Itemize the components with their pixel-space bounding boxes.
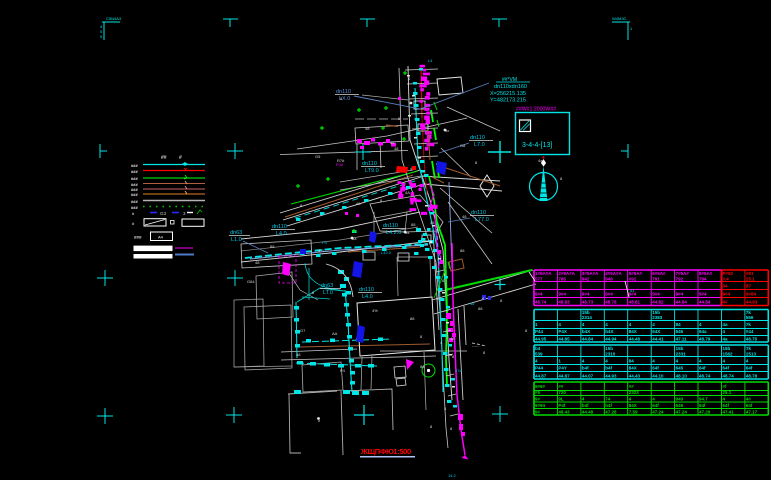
svg-text:48.93: 48.93: [558, 300, 570, 305]
svg-text:AA: AA: [332, 331, 338, 336]
svg-text:G5: G5: [315, 154, 321, 159]
svg-text:84X: 84X: [629, 366, 637, 371]
svg-text:88: 88: [460, 248, 465, 253]
svg-text:2310: 2310: [605, 352, 616, 357]
svg-text:44.84: 44.84: [676, 300, 688, 305]
svg-text:48.10: 48.10: [676, 374, 688, 379]
svg-text:48.78: 48.78: [746, 374, 758, 379]
svg-text:34: 34: [723, 284, 729, 289]
svg-text:dn110: dn110: [362, 161, 377, 167]
svg-text:#91: #91: [746, 271, 754, 276]
svg-text:44.94: 44.94: [605, 337, 617, 342]
svg-text:44.95: 44.95: [535, 337, 547, 342]
svg-text:48: 48: [255, 260, 260, 265]
svg-text:###: ###: [131, 199, 138, 204]
svg-text:48.74: 48.74: [699, 374, 711, 379]
svg-text:47.11: 47.11: [676, 337, 688, 342]
svg-text:48: 48: [450, 336, 455, 341]
svg-text:791: 791: [652, 277, 660, 282]
svg-text:44.48: 44.48: [582, 410, 594, 415]
svg-text:4#: 4#: [470, 301, 475, 306]
svg-text:48.79: 48.79: [699, 337, 711, 342]
svg-text:720: 720: [558, 390, 566, 395]
svg-text:LT9.0: LT9.0: [365, 168, 379, 174]
svg-text:74: 74: [605, 397, 611, 402]
svg-text:9#4: 9#4: [558, 292, 566, 297]
svg-text:88: 88: [390, 140, 395, 145]
svg-text:940: 940: [676, 397, 684, 402]
svg-text:64f: 64f: [699, 403, 706, 408]
svg-text:44.87: 44.87: [535, 374, 547, 379]
svg-text:25.1: 25.1: [746, 277, 755, 282]
svg-text:1562: 1562: [723, 352, 734, 357]
svg-text:48: 48: [462, 214, 467, 219]
svg-text:645: 645: [676, 366, 684, 371]
svg-text:4.9: 4.9: [318, 248, 324, 253]
svg-text:2513: 2513: [746, 352, 757, 357]
svg-text:44.85: 44.85: [558, 337, 570, 342]
svg-text:9#4: 9#4: [535, 292, 543, 297]
svg-text:dn63: dn63: [230, 230, 242, 236]
svg-text:44.43: 44.43: [629, 374, 641, 379]
svg-text:44.07: 44.07: [582, 374, 594, 379]
svg-text:48.81: 48.81: [629, 300, 641, 305]
svg-text:9#4: 9#4: [582, 292, 590, 297]
svg-text:48: 48: [356, 201, 361, 206]
svg-text:G84: G84: [247, 279, 255, 284]
svg-text:9#: 9#: [535, 397, 541, 402]
svg-text:C5N4A3: C5N4A3: [106, 16, 122, 21]
svg-text:###: ###: [131, 192, 138, 197]
svg-text:G3: G3: [160, 211, 167, 216]
svg-text:##W#1:2000W##: ##W#1:2000W##: [516, 107, 556, 113]
svg-text:6#5A#: 6#5A#: [652, 271, 666, 276]
svg-text:G7: G7: [300, 328, 306, 333]
svg-text:P4f: P4f: [558, 403, 566, 408]
svg-text:44.84: 44.84: [699, 300, 711, 305]
svg-text:942: 942: [582, 277, 590, 282]
svg-text:4#: 4#: [746, 397, 752, 402]
svg-text:9#9#: 9#9#: [535, 384, 546, 389]
svg-text:64a: 64a: [699, 329, 707, 334]
svg-text:44.84: 44.84: [582, 337, 594, 342]
svg-text:ЖЩПФЮ1:500: ЖЩПФЮ1:500: [360, 447, 411, 456]
svg-text:##: ##: [161, 155, 167, 161]
svg-text:3-4-4-[13]: 3-4-4-[13]: [522, 142, 552, 149]
svg-text:R7#: R7#: [337, 158, 345, 163]
svg-text:25.1: 25.1: [723, 390, 732, 395]
svg-text:94.7: 94.7: [699, 397, 708, 402]
svg-text:64f: 64f: [652, 366, 659, 371]
svg-text:7k: 7k: [746, 322, 752, 327]
svg-text:47.41: 47.41: [723, 410, 735, 415]
svg-text:#5: #5: [535, 390, 541, 395]
svg-text:#f: #f: [723, 384, 728, 389]
svg-text:64f: 64f: [699, 366, 706, 371]
svg-text:44.82: 44.82: [652, 300, 664, 305]
svg-text:792: 792: [676, 277, 684, 282]
svg-text:###: ###: [131, 169, 138, 174]
svg-text:4a: 4a: [723, 322, 729, 327]
svg-text:64f: 64f: [723, 366, 730, 371]
svg-text:dn63: dn63: [321, 283, 333, 289]
svg-text:44.41: 44.41: [652, 337, 664, 342]
svg-text:W4M3C: W4M3C: [612, 16, 627, 21]
svg-text:7.59: 7.59: [629, 410, 638, 415]
svg-text:48.73: 48.73: [582, 300, 594, 305]
svg-text:4A: 4A: [405, 190, 410, 195]
svg-text:L77.0: L77.0: [475, 217, 489, 223]
svg-text:dn110: dn110: [470, 135, 485, 141]
svg-text:X=256215.135: X=256215.135: [490, 91, 526, 97]
svg-text:2#9A#A: 2#9A#A: [558, 271, 575, 276]
svg-text:84: 84: [629, 359, 635, 364]
svg-text:48: 48: [365, 126, 370, 131]
svg-text:9#4: 9#4: [699, 292, 707, 297]
svg-text:dn110: dn110: [471, 210, 486, 216]
svg-text:9#: 9#: [535, 410, 541, 415]
svg-text:2314: 2314: [582, 315, 593, 320]
svg-text:556: 556: [746, 315, 754, 320]
svg-text:47.24: 47.24: [652, 410, 664, 415]
svg-text:7#5A#: 7#5A#: [676, 271, 690, 276]
svg-text:#.4: #.4: [723, 277, 730, 282]
svg-text:###: ###: [131, 163, 138, 168]
svg-text:P44: P44: [535, 329, 544, 334]
svg-text:u: u: [414, 116, 416, 121]
svg-text:47.29: 47.29: [699, 410, 711, 415]
svg-text:48.74: 48.74: [723, 374, 735, 379]
svg-text:L7.0: L7.0: [474, 142, 485, 148]
svg-text:14.2: 14.2: [448, 473, 457, 478]
svg-text:P4Y: P4Y: [558, 366, 567, 371]
svg-text:64X: 64X: [652, 329, 660, 334]
svg-text:G8: G8: [460, 143, 466, 148]
svg-text:84: 84: [676, 322, 682, 327]
svg-text:9#84: 9#84: [746, 292, 757, 297]
svg-text:dn110xdn160: dn110xdn160: [494, 84, 527, 90]
svg-text:b4f: b4f: [605, 403, 612, 408]
svg-text:9#4: 9#4: [605, 292, 613, 297]
svg-text:44.83: 44.83: [746, 300, 758, 305]
svg-text:L4.0: L4.0: [276, 231, 287, 237]
svg-text:b4f: b4f: [582, 403, 589, 408]
svg-text:64f: 64f: [652, 403, 659, 408]
svg-text:P44: P44: [535, 366, 544, 371]
svg-text:9#4: 9#4: [723, 292, 731, 297]
svg-text:44: 44: [436, 296, 441, 301]
svg-text:#91: #91: [629, 277, 637, 282]
svg-text:44.87: 44.87: [558, 374, 570, 379]
svg-text:794: 794: [699, 277, 707, 282]
svg-text:##: ##: [629, 384, 635, 389]
svg-text:b4X: b4X: [605, 329, 613, 334]
svg-text:15b: 15b: [723, 346, 731, 351]
svg-text:48: 48: [296, 352, 301, 357]
svg-text:9#94: 9#94: [535, 403, 546, 408]
svg-text:L4: L4: [428, 58, 433, 63]
svg-text:47a: 47a: [455, 368, 462, 373]
svg-text:dn110: dn110: [359, 287, 374, 293]
svg-text:9#4: 9#4: [652, 292, 660, 297]
svg-text:64f: 64f: [723, 403, 730, 408]
svg-text:41: 41: [630, 288, 635, 293]
svg-text:P#92: P#92: [723, 271, 734, 276]
svg-text:88: 88: [270, 244, 275, 249]
svg-text:###: ###: [131, 176, 138, 181]
svg-text:48.43: 48.43: [558, 410, 570, 415]
svg-text:b4: b4: [535, 346, 541, 351]
svg-text:539: 539: [535, 352, 543, 357]
svg-text:b4f: b4f: [582, 366, 589, 371]
svg-text:645: 645: [676, 403, 684, 408]
svg-text:L42.0: L42.0: [381, 250, 392, 255]
svg-text:4a: 4a: [723, 337, 729, 342]
svg-text:87: 87: [746, 284, 752, 289]
svg-text:4%: 4%: [372, 308, 378, 313]
svg-text:48.74: 48.74: [535, 300, 547, 305]
svg-text:9L: 9L: [558, 397, 564, 402]
svg-text:48: 48: [394, 146, 399, 151]
svg-text:###: ###: [131, 205, 138, 210]
svg-text:5#5A#: 5#5A#: [629, 271, 643, 276]
svg-text:9#4: 9#4: [676, 292, 684, 297]
svg-text:b4X: b4X: [582, 329, 590, 334]
svg-text:dn110: dn110: [383, 223, 398, 229]
svg-text:dn110: dn110: [272, 224, 287, 230]
svg-text:84X: 84X: [629, 329, 637, 334]
svg-text:1#9A#A: 1#9A#A: [535, 271, 552, 276]
svg-text:-----: -----: [472, 343, 479, 348]
svg-text:Y=482173.215: Y=482173.215: [490, 98, 526, 104]
svg-text:44.48: 44.48: [629, 337, 641, 342]
svg-text:48.76: 48.76: [605, 300, 617, 305]
svg-text:15b: 15b: [605, 346, 613, 351]
svg-text:LT.0: LT.0: [323, 290, 333, 296]
svg-text:44.10: 44.10: [652, 374, 664, 379]
svg-text:577: 577: [535, 277, 543, 282]
svg-text:44.93: 44.93: [605, 374, 617, 379]
svg-text:dn110: dn110: [336, 89, 351, 95]
svg-text:64f: 64f: [746, 366, 753, 371]
svg-text:###: ###: [134, 235, 142, 240]
svg-text:P4X: P4X: [558, 329, 567, 334]
svg-text:L4.2.0: L4.2.0: [386, 230, 401, 236]
svg-text:P5: P5: [322, 240, 328, 245]
svg-text:#44: #44: [746, 329, 754, 334]
svg-text:2323: 2323: [629, 390, 640, 395]
svg-text:L1.0: L1.0: [231, 237, 242, 243]
svg-text:47.28: 47.28: [605, 410, 617, 415]
svg-text:8#5A#: 8#5A#: [699, 271, 713, 276]
svg-text:785: 785: [558, 277, 566, 282]
svg-text:3#5A#A: 3#5A#A: [582, 271, 599, 276]
svg-text:b4f: b4f: [605, 366, 612, 371]
svg-text:88: 88: [420, 364, 425, 369]
svg-text:#: #: [179, 155, 182, 161]
svg-text:2331: 2331: [676, 352, 687, 357]
svg-text:88: 88: [478, 306, 483, 311]
svg-text:64f: 64f: [746, 403, 753, 408]
svg-text:7k: 7k: [746, 346, 752, 351]
svg-text:47.24: 47.24: [676, 410, 688, 415]
svg-text:88: 88: [411, 222, 416, 227]
svg-text:P4: P4: [340, 368, 346, 373]
svg-text:88: 88: [410, 316, 415, 321]
svg-text:L4.0: L4.0: [362, 294, 373, 300]
svg-text:645: 645: [676, 329, 684, 334]
svg-text:15b: 15b: [676, 346, 684, 351]
svg-text:4#: 4#: [723, 300, 729, 305]
svg-text:##: ##: [558, 384, 564, 389]
svg-text:45: 45: [430, 220, 435, 225]
svg-text:48.75: 48.75: [746, 337, 758, 342]
svg-text:4#5A#A: 4#5A#A: [605, 271, 622, 276]
svg-text:84X: 84X: [629, 403, 637, 408]
svg-text:2383: 2383: [652, 315, 663, 320]
svg-text:47.17: 47.17: [746, 410, 758, 415]
svg-text:949: 949: [605, 277, 613, 282]
svg-text:A4: A4: [158, 235, 164, 240]
